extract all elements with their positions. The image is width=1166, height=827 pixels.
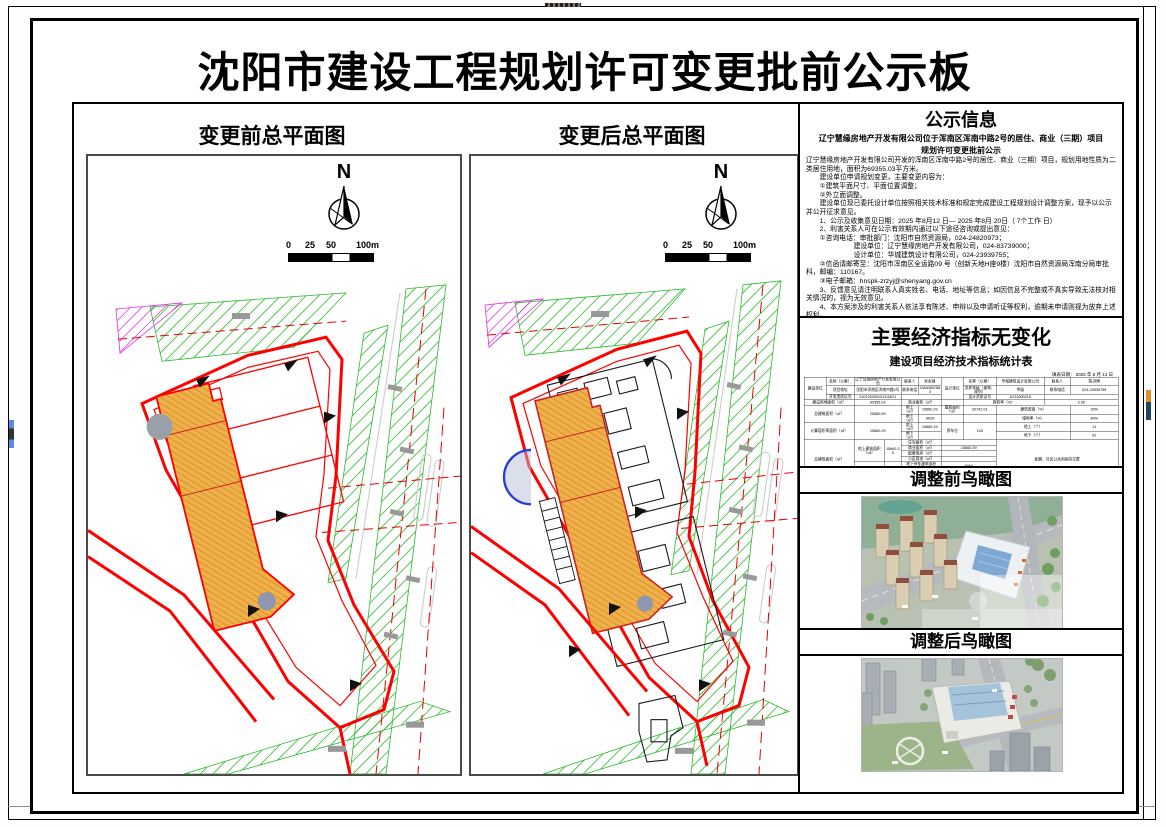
econ-table-cell: 15660.29: [918, 405, 941, 414]
econ-table-cell: 基底面积（㎡）: [941, 405, 963, 414]
scale-tick: 50: [703, 240, 713, 250]
econ-title: 主要经济指标无变化: [800, 321, 1122, 350]
notice-paragraph: 4、本方案涉及的利害关系人依法享有陈述、申辩以及申请听证等权利，逾期未申请则视为…: [806, 304, 1117, 318]
site-plan-after-panel: N 0 25 50 100m: [469, 154, 799, 776]
econ-table-cell: 13840897863: [918, 386, 941, 395]
notice-paragraphs: 辽宁慧缘房地产开发有限公司开发的浑南区浑南中路2号的居住、商业（三期）项目，规划…: [800, 156, 1122, 318]
edge-annotation-top: [545, 3, 581, 7]
edge-annotation-right: [1146, 390, 1151, 420]
notice-subtitle-2: 规划许可变更批前公示: [800, 145, 1122, 157]
notice-title: 公示信息: [800, 106, 1122, 132]
econ-table-cell: 9420: [918, 414, 941, 423]
econ-table: 建设单位名称（公章）辽宁慧缘房地产开发有限公司联系人吴永强设计单位名称（公章）华…: [804, 377, 1119, 468]
scale-tick: 0: [286, 240, 291, 250]
scale-tick: 0: [663, 240, 668, 250]
econ-table-cell: 92: [1070, 431, 1118, 440]
econ-table-cell: 25080.59: [854, 405, 901, 422]
econ-table-cell: 20742.01: [963, 405, 996, 414]
econ-table-cell: 华城建筑设计有限公司: [996, 377, 1044, 386]
econ-table-cell: 联系电话: [1044, 386, 1070, 395]
econ-table-cell: 设计单位: [941, 377, 963, 400]
north-label: N: [691, 162, 751, 182]
notice-paragraph: 建设单位：辽宁慧缘房地产开发有限公司，024-83739000；: [806, 243, 1117, 252]
econ-table-cell: 建筑密度（%）: [996, 405, 1070, 414]
aerial-before-render: [862, 497, 1062, 628]
econ-table-cell: 配套、社区公共用房的位置: [996, 440, 1118, 468]
econ-table-cell: 名称（公章）: [826, 377, 854, 386]
north-compass: N: [691, 162, 751, 234]
scale-tick: 100m: [733, 240, 756, 250]
north-compass-icon: [322, 182, 366, 234]
econ-table-cell: 地上（个）: [996, 423, 1070, 432]
econ-table-cell: 地下（㎡）: [901, 414, 918, 423]
econ-table-cell: 甲级: [996, 386, 1044, 395]
notice-paragraph: 3、反馈意见请注明联系人真实姓名、电话、地址等信息；如因信息不完整或不真实导致无…: [806, 287, 1117, 304]
econ-table-cell: 总建筑面积（㎡）: [804, 405, 854, 422]
scale-bar-graphic: [288, 253, 374, 262]
content-frame: 变更前总平面图 变更后总平面图: [72, 102, 1124, 794]
aerial-after-title: 调整后鸟瞰图: [800, 630, 1122, 656]
econ-table-cell: 103: [963, 423, 996, 440]
econ-table-cell: 15660.29: [854, 423, 901, 440]
notice-paragraph: ③电子邮箱：hnspk-zrzyj@shenyang.gov.cn: [806, 278, 1117, 287]
scale-bar-graphic: [665, 253, 751, 262]
econ-table-cell: 地上（㎡）: [901, 405, 918, 414]
econ-table-cell: 计算容积率面积（㎡）: [804, 423, 854, 440]
econ-table-cell: 建设单位: [804, 377, 826, 400]
scale-tick: 100m: [356, 240, 379, 250]
econ-table-cell: 地上（㎡）: [901, 423, 918, 432]
econ-table-cell: [963, 414, 996, 423]
notice-subtitle-1: 辽宁慧缘房地产开发有限公司位于浑南区浑南中路2号的居住、商业（三期）项目: [800, 133, 1122, 145]
econ-table-cell: 联系人: [1044, 377, 1070, 386]
econ-table-cell: 15660.29: [918, 423, 941, 432]
north-label: N: [314, 162, 374, 182]
econ-table-cell: 停车位: [941, 423, 963, 440]
econ-table-cell: 沈阳市浑南区浑南中路2号: [854, 386, 901, 395]
econ-table-cell: 总建筑面积（㎡）: [804, 440, 854, 468]
econ-table-cell: 项目地址: [826, 386, 854, 395]
econ-table-cell: 地下（个）: [996, 431, 1070, 440]
econ-table-cell: [941, 414, 963, 423]
econ-table-cell: 15660.39: [884, 440, 901, 462]
econ-table-cell: 210120000101110021: [854, 394, 901, 400]
plan-before-title: 变更前总平面图: [86, 120, 458, 150]
econ-table-cell: [918, 431, 941, 440]
aerial-after-image: [861, 658, 1063, 772]
notice-paragraph: 1、公示及收集意见日期：2025 年8月12 日— 2025 年8月 20日（ …: [806, 218, 1117, 227]
econ-table-cell: 联系电话: [901, 386, 918, 395]
aerial-before-section: 调整前鸟瞰图: [800, 468, 1122, 630]
econ-table-cell: 11: [1070, 423, 1118, 432]
plan-after-title: 变更后总平面图: [469, 120, 795, 150]
public-notice-section: 公示信息 辽宁慧缘房地产开发有限公司位于浑南区浑南中路2号的居住、商业（三期）项…: [800, 104, 1122, 318]
econ-table-cell: 024-23939755: [1070, 386, 1118, 395]
aerial-after-section: 调整后鸟瞰图: [800, 630, 1122, 790]
notice-board: 沈阳市建设工程规划许可变更批前公示板 变更前总平面图 变更后总平面图: [30, 18, 1139, 814]
econ-table-cell: 地下（㎡）: [901, 431, 918, 440]
edge-annotation-left: [9, 420, 14, 448]
notice-paragraph: 2、利害关系人可在公示有效期内通过以下途径咨询或提出意见：: [806, 226, 1117, 235]
economic-indicators-section: 主要经济指标无变化 建设项目经济技术指标统计表 填表日期： 2025 年 6 月…: [800, 318, 1122, 468]
econ-table-cell: 开发资质证号: [826, 394, 854, 400]
econ-table-cell: 资质等级（建筑、规划）: [963, 386, 996, 395]
sheet-edge-line: [1143, 6, 1144, 819]
econ-subtitle: 建设项目经济技术指标统计表: [800, 353, 1122, 369]
econ-table-cell: 地上建筑面积（㎡）: [854, 440, 884, 462]
scale-tick: 25: [305, 240, 315, 250]
notice-paragraph: ②信函请邮寄至：沈阳市浑南区全运路09 号（创新天地H座9楼）沈阳市自然资源局浑…: [806, 261, 1117, 278]
econ-table-cell: 吴永强: [918, 377, 941, 386]
scale-bar: 0 25 50 100m: [288, 240, 378, 262]
aerial-before-image: [861, 496, 1063, 629]
econ-table-cell: 30%: [1070, 405, 1118, 414]
north-compass-icon: [699, 182, 743, 234]
notice-paragraph: ①建筑平面尺寸、平面位置调整；: [806, 183, 1117, 192]
right-column: 公示信息 辽宁慧缘房地产开发有限公司位于浑南区浑南中路2号的居住、商业（三期）项…: [798, 104, 1122, 792]
econ-table-cell: 联系人: [901, 377, 918, 386]
aerial-before-title: 调整前鸟瞰图: [800, 468, 1122, 494]
page-title: 沈阳市建设工程规划许可变更批前公示板: [33, 39, 1136, 100]
econ-table-cell: 40%: [1070, 414, 1118, 423]
econ-table-cell: 绿地率（%）: [996, 414, 1070, 423]
site-plan-before-drawing: [88, 156, 460, 774]
notice-paragraph: 建设单位申请规划变更，主要变更内容为：: [806, 174, 1117, 183]
econ-table-cell: 陈洪博: [1070, 377, 1118, 386]
site-plan-before-panel: N 0 25 50 100m: [86, 154, 462, 776]
econ-table-cell: 辽宁慧缘房地产开发有限公司: [854, 377, 901, 386]
scale-bar: 0 25 50 100m: [665, 240, 755, 262]
scale-tick: 25: [682, 240, 692, 250]
north-compass: N: [314, 162, 374, 234]
aerial-after-render: [862, 659, 1062, 771]
econ-table-cell: 名称（公章）: [963, 377, 996, 386]
notice-paragraph: 建设单位现已委托设计单位按照相关技术标准和规定完成建设工程规划设计调整方案，现予…: [806, 200, 1117, 217]
notice-paragraph: 设计单位：华城建筑设计有限公司，024-23939755；: [806, 252, 1117, 261]
scale-tick: 50: [326, 240, 336, 250]
econ-table-body: 建设单位名称（公章）辽宁慧缘房地产开发有限公司联系人吴永强设计单位名称（公章）华…: [804, 377, 1118, 468]
notice-paragraph: 辽宁慧缘房地产开发有限公司开发的浑南区浑南中路2号的居住、商业（三期）项目，规划…: [806, 157, 1117, 174]
